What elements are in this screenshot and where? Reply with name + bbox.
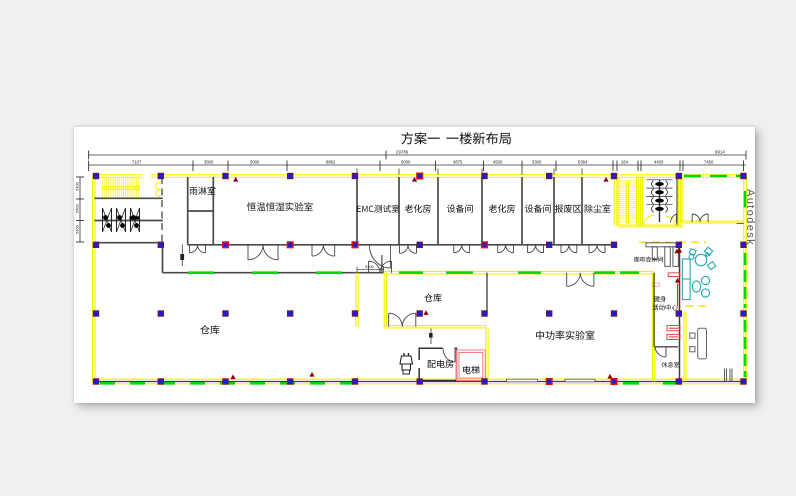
svg-text:7450: 7450 (704, 160, 714, 165)
svg-text:3600: 3600 (204, 160, 214, 165)
svg-text:3300: 3300 (365, 264, 375, 269)
svg-text:9914: 9914 (715, 150, 725, 155)
svg-text:5000: 5000 (250, 160, 260, 165)
svg-text:4875: 4875 (453, 160, 463, 165)
svg-text:3300: 3300 (532, 160, 542, 165)
svg-text:5000: 5000 (401, 160, 411, 165)
svg-text:5400: 5400 (75, 181, 80, 191)
svg-text:4400: 4400 (654, 160, 664, 165)
svg-text:5364: 5364 (578, 160, 588, 165)
svg-text:7107: 7107 (132, 160, 142, 165)
svg-text:5400: 5400 (75, 203, 80, 213)
svg-text:4500: 4500 (493, 160, 503, 165)
svg-text:8862: 8862 (326, 160, 336, 165)
svg-text:29786: 29786 (396, 150, 409, 155)
svg-text:264: 264 (621, 160, 629, 165)
svg-text:5400: 5400 (75, 224, 80, 234)
